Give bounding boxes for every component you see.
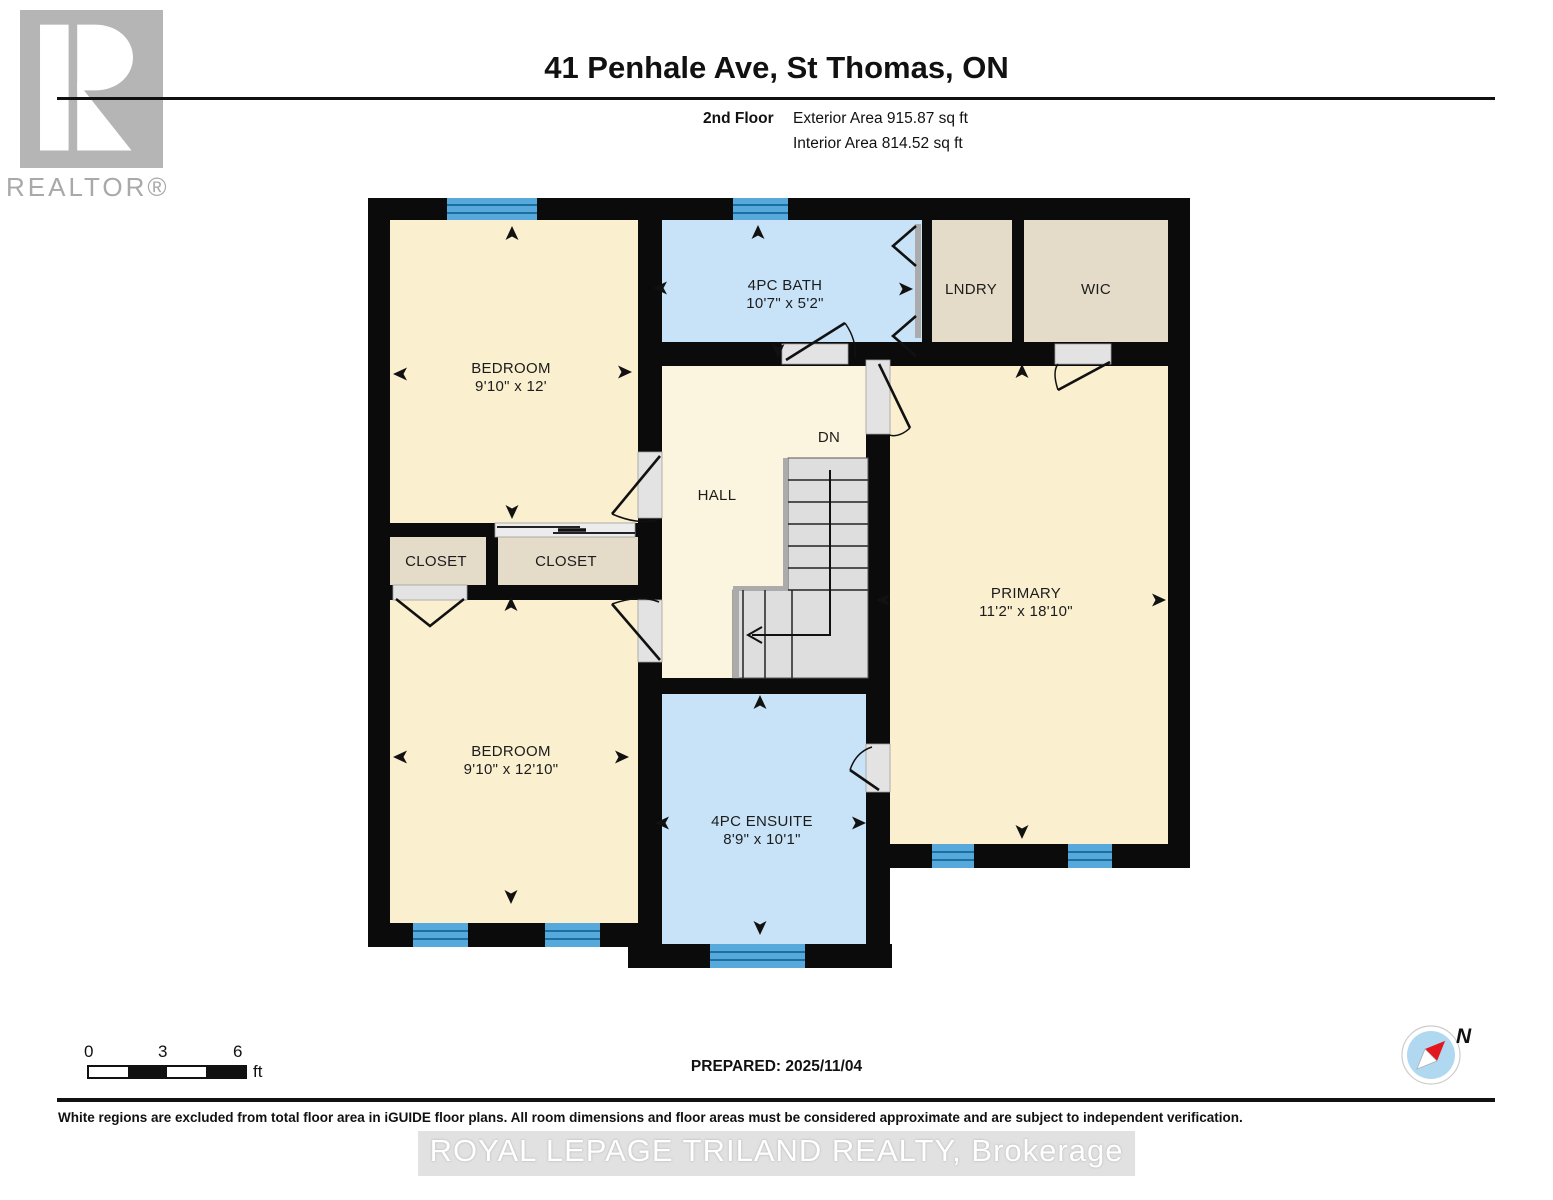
- window: [413, 923, 468, 947]
- prepared-date: PREPARED: 2025/11/04: [0, 1058, 1553, 1076]
- label-bedroom-top: BEDROOM: [471, 360, 551, 377]
- footer-divider: [57, 1098, 1495, 1102]
- compass-icon: [1400, 1024, 1462, 1086]
- label-bedroom-bottom: BEDROOM: [471, 743, 551, 760]
- window: [545, 923, 600, 947]
- label-bath: 4PC BATH: [748, 277, 823, 294]
- floor-plan: BEDROOM 9'10" x 12' 4PC BATH 10'7" x 5'2…: [0, 0, 1553, 1200]
- label-hall: HALL: [698, 487, 737, 504]
- label-closet-left: CLOSET: [405, 553, 467, 570]
- window: [710, 944, 805, 968]
- compass-north-label: N: [1456, 1025, 1471, 1049]
- label-stairs-down: DN: [818, 429, 840, 446]
- label-primary: PRIMARY: [991, 585, 1061, 602]
- label-bedroom-bottom-dims: 9'10" x 12'10": [464, 761, 559, 778]
- label-laundry: LNDRY: [945, 281, 997, 298]
- label-primary-dims: 11'2" x 18'10": [979, 603, 1073, 620]
- window: [733, 198, 788, 220]
- door-closet-right-sliding: [495, 523, 635, 537]
- floor-plan-page: REALTOR® 41 Penhale Ave, St Thomas, ON 2…: [0, 0, 1553, 1200]
- brokerage-watermark: ROYAL LEPAGE TRILAND REALTY, Brokerage: [418, 1131, 1136, 1176]
- label-bedroom-top-dims: 9'10" x 12': [475, 378, 547, 395]
- label-closet-right: CLOSET: [535, 553, 597, 570]
- label-ensuite: 4PC ENSUITE: [711, 813, 813, 830]
- window: [447, 198, 537, 220]
- window: [1068, 844, 1112, 868]
- disclaimer-text: White regions are excluded from total fl…: [58, 1110, 1243, 1125]
- label-wic: WIC: [1081, 281, 1111, 298]
- window: [932, 844, 974, 868]
- label-bath-dims: 10'7" x 5'2": [746, 295, 824, 312]
- label-ensuite-dims: 8'9" x 10'1": [723, 831, 801, 848]
